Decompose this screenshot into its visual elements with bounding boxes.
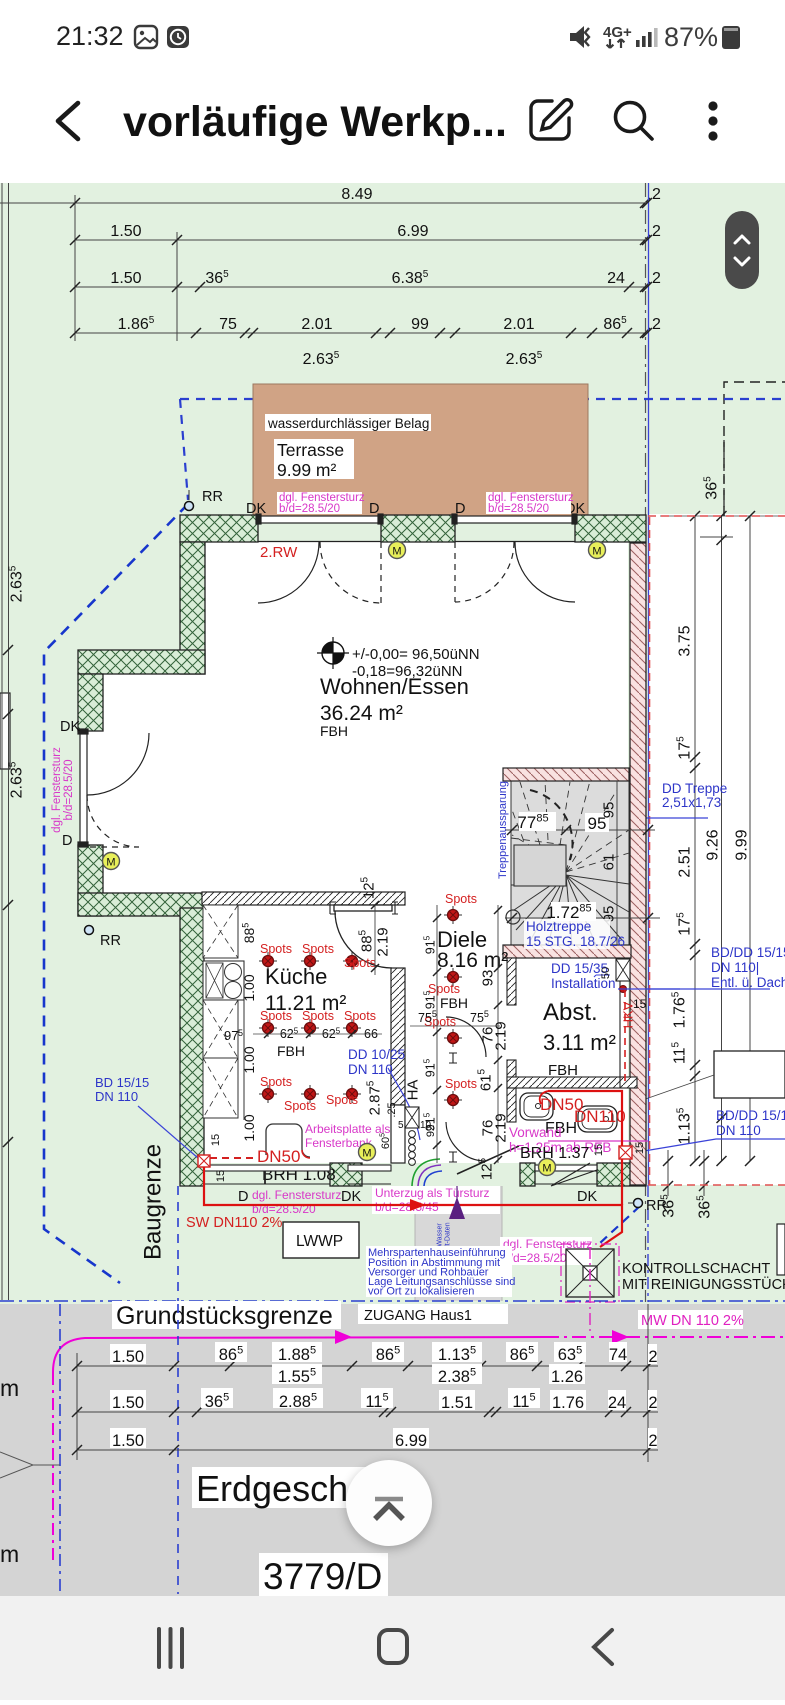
- svg-text:Spots: Spots: [284, 1099, 316, 1113]
- svg-text:1.51: 1.51: [441, 1394, 473, 1412]
- svg-text:LWWP: LWWP: [296, 1233, 343, 1250]
- svg-text:1.50: 1.50: [112, 1394, 144, 1412]
- svg-text:b/d=28.5/20: b/d=28.5/20: [63, 759, 75, 820]
- svg-text:15: 15: [634, 1142, 646, 1154]
- svg-text:9.26: 9.26: [705, 829, 722, 860]
- svg-text:2.19: 2.19: [492, 1021, 509, 1050]
- svg-text:93: 93: [479, 970, 496, 987]
- svg-text:BD/DD 15/15: BD/DD 15/15: [711, 945, 785, 960]
- svg-text:2.51: 2.51: [677, 846, 694, 877]
- svg-text:24: 24: [607, 270, 625, 287]
- svg-text:Entl. ü. Dach: Entl. ü. Dach: [711, 975, 785, 990]
- svg-text:8.49: 8.49: [341, 186, 372, 203]
- svg-text:2,51x1,73: 2,51x1,73: [662, 795, 721, 810]
- svg-text:m: m: [0, 1375, 19, 1401]
- svg-text:dgl. Fenstersturz: dgl. Fenstersturz: [252, 1188, 341, 1202]
- svg-text:BRH 1.37: BRH 1.37: [520, 1145, 589, 1162]
- svg-text:RR: RR: [646, 1198, 667, 1214]
- svg-text:Spots: Spots: [344, 956, 376, 970]
- svg-text:DK: DK: [246, 501, 266, 517]
- svg-text:M: M: [362, 1148, 371, 1160]
- svg-text:2.RW: 2.RW: [260, 544, 298, 561]
- svg-text:DK: DK: [341, 1189, 361, 1205]
- svg-text:M: M: [542, 1163, 551, 1175]
- svg-text:FBH: FBH: [320, 723, 348, 739]
- svg-text:KONTROLLSCHACHT: KONTROLLSCHACHT: [622, 1261, 770, 1277]
- svg-text:b/d=28.5/20: b/d=28.5/20: [279, 503, 340, 515]
- svg-text:Arbeitsplatte als: Arbeitsplatte als: [305, 1122, 390, 1136]
- svg-text:DK: DK: [577, 1189, 597, 1205]
- svg-text:3.11 m²: 3.11 m²: [543, 1030, 616, 1055]
- svg-text:1.76: 1.76: [552, 1394, 584, 1412]
- svg-text:DN 110|: DN 110|: [711, 960, 759, 975]
- svg-text:HA: HA: [404, 1080, 421, 1101]
- svg-text:2.01: 2.01: [301, 316, 332, 333]
- svg-text:1.50: 1.50: [112, 1432, 144, 1450]
- svg-text:2: 2: [652, 270, 661, 287]
- svg-text:1.50: 1.50: [112, 1348, 144, 1366]
- svg-text:D: D: [369, 501, 379, 517]
- svg-text:Spots: Spots: [260, 1009, 292, 1023]
- svg-text:61: 61: [600, 854, 617, 871]
- svg-text:9.99 m²: 9.99 m²: [277, 460, 336, 480]
- svg-text:75: 75: [219, 316, 237, 333]
- svg-text:Spots: Spots: [428, 982, 460, 996]
- svg-text:4G+: 4G+: [603, 24, 632, 41]
- svg-text:SW DN110 2%: SW DN110 2%: [186, 1215, 283, 1231]
- svg-text:2: 2: [652, 186, 661, 203]
- svg-text:Spots: Spots: [260, 942, 292, 956]
- svg-text:2: 2: [652, 316, 661, 333]
- svg-text:24: 24: [608, 1394, 626, 1412]
- svg-text:DN50: DN50: [257, 1147, 300, 1166]
- svg-text:Terrasse: Terrasse: [277, 440, 344, 460]
- svg-text:3.75: 3.75: [677, 625, 694, 656]
- svg-text:FBH: FBH: [548, 1062, 578, 1079]
- svg-text:Spots: Spots: [344, 1009, 376, 1023]
- svg-text:2: 2: [648, 1394, 657, 1412]
- svg-text:DN 110: DN 110: [348, 1062, 393, 1077]
- svg-text:.25: .25: [386, 1102, 398, 1117]
- svg-text:DN110: DN110: [574, 1107, 626, 1126]
- svg-text:6.99: 6.99: [395, 1432, 427, 1450]
- svg-text:Treppenaussparung: Treppenaussparung: [497, 781, 509, 879]
- svg-text:DN 110: DN 110: [716, 1123, 761, 1138]
- svg-text:2.19: 2.19: [492, 1113, 509, 1142]
- svg-text:vor Ort zu lokalisieren: vor Ort zu lokalisieren: [368, 1286, 474, 1298]
- svg-text:1.50: 1.50: [110, 270, 141, 287]
- svg-text:dgl. Fenstersturz: dgl. Fenstersturz: [51, 747, 63, 833]
- svg-text:2: 2: [652, 223, 661, 240]
- svg-text:Küche: Küche: [265, 964, 327, 989]
- svg-text:BD/DD 15/1: BD/DD 15/1: [716, 1108, 785, 1123]
- svg-text:b/d=28.5/20: b/d=28.5/20: [503, 1251, 567, 1265]
- svg-text:3779/D: 3779/D: [263, 1556, 382, 1596]
- svg-text:1.50: 1.50: [110, 223, 141, 240]
- svg-text:HKV: HKV: [621, 1001, 636, 1028]
- svg-text:DN 110: DN 110: [95, 1089, 138, 1104]
- svg-text:D: D: [62, 833, 72, 849]
- svg-text:M: M: [592, 546, 601, 558]
- svg-text:DD 10/25: DD 10/25: [348, 1047, 405, 1062]
- svg-text:Spots: Spots: [302, 942, 334, 956]
- svg-text:15: 15: [593, 1144, 605, 1156]
- svg-text:b/d=28.5/45: b/d=28.5/45: [375, 1200, 439, 1214]
- svg-text:2: 2: [648, 1348, 657, 1366]
- svg-text:Spots: Spots: [260, 1075, 292, 1089]
- svg-text:DK: DK: [60, 719, 80, 735]
- svg-text:97: 97: [224, 1028, 238, 1043]
- svg-text:Baugrenze: Baugrenze: [139, 1144, 166, 1260]
- svg-text:95: 95: [600, 802, 617, 819]
- svg-text:m: m: [0, 1541, 19, 1567]
- svg-text:Spots: Spots: [302, 1009, 334, 1023]
- svg-text:Grundstücksgrenze: Grundstücksgrenze: [116, 1302, 333, 1330]
- svg-text:6.99: 6.99: [397, 223, 428, 240]
- svg-text:+/-0,00= 96,50üNN: +/-0,00= 96,50üNN: [352, 646, 480, 663]
- svg-text:2.01: 2.01: [503, 316, 534, 333]
- svg-text:1.00: 1.00: [241, 1114, 257, 1141]
- svg-text:5: 5: [238, 1028, 243, 1038]
- svg-text:15: 15: [210, 1134, 222, 1146]
- svg-text:74: 74: [609, 1346, 627, 1364]
- svg-text:5: 5: [398, 1120, 404, 1131]
- svg-text:BD 15/15: BD 15/15: [95, 1075, 149, 1090]
- svg-text:M: M: [392, 546, 401, 558]
- svg-text:1.00: 1.00: [241, 974, 257, 1001]
- svg-text:Wasser: Wasser: [436, 1223, 443, 1247]
- svg-text:D: D: [455, 501, 465, 517]
- svg-text:2.19: 2.19: [374, 927, 391, 956]
- svg-text:-0,18=96,32üNN: -0,18=96,32üNN: [352, 663, 463, 680]
- svg-text:Holztreppe: Holztreppe: [526, 919, 591, 934]
- svg-text:FBH: FBH: [440, 995, 468, 1011]
- svg-text:D: D: [238, 1189, 248, 1205]
- svg-text:1.26: 1.26: [551, 1368, 583, 1386]
- svg-text:Unterzug als Türsturz: Unterzug als Türsturz: [375, 1186, 490, 1200]
- svg-text:Spots: Spots: [445, 1077, 477, 1091]
- svg-text:wasserdurchlässiger Belag: wasserdurchlässiger Belag: [267, 416, 429, 431]
- svg-text:15: 15: [215, 1170, 227, 1182]
- svg-text:Spots: Spots: [326, 1093, 358, 1107]
- svg-text:9.99: 9.99: [734, 829, 751, 860]
- svg-text:M: M: [106, 857, 115, 869]
- svg-text:MIT REINIGUNGSSTÜCK: MIT REINIGUNGSSTÜCK: [622, 1275, 785, 1293]
- svg-text:2: 2: [648, 1432, 657, 1450]
- svg-text:36.24 m²: 36.24 m²: [320, 702, 403, 725]
- svg-text:MW DN 110 2%: MW DN 110 2%: [641, 1313, 744, 1329]
- svg-text:Vorwand: Vorwand: [509, 1125, 562, 1140]
- svg-text:FBH: FBH: [277, 1043, 305, 1059]
- svg-text:ZUGANG Haus1: ZUGANG Haus1: [364, 1308, 472, 1324]
- svg-text:50: 50: [600, 967, 612, 979]
- svg-text:RR: RR: [202, 489, 223, 505]
- svg-text:15 STG. 18.7/26: 15 STG. 18.7/26: [526, 934, 625, 949]
- svg-text:Spots: Spots: [445, 892, 477, 906]
- svg-text:DD Treppe: DD Treppe: [662, 781, 727, 796]
- svg-text:99: 99: [411, 316, 429, 333]
- svg-text:RR: RR: [100, 933, 121, 949]
- svg-text:1.00: 1.00: [241, 1046, 257, 1073]
- svg-text:Abst.: Abst.: [543, 999, 598, 1026]
- svg-text:b/d=28.5/20: b/d=28.5/20: [488, 503, 549, 515]
